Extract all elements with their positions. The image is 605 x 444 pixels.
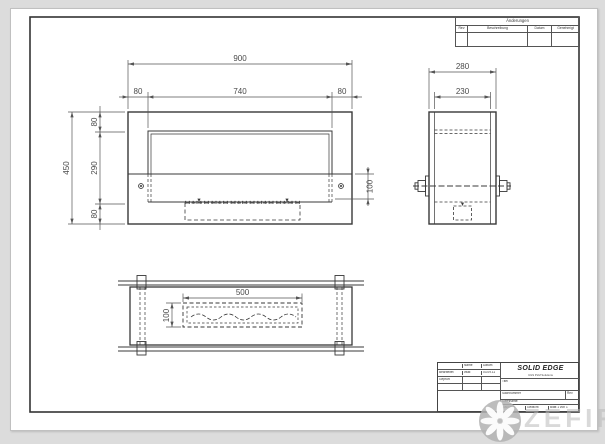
tb-bearbeitet-label: Bearbeitet <box>439 371 454 375</box>
side-view <box>413 112 511 224</box>
solid-edge-logo: SOLID EDGE <box>501 365 580 373</box>
tb-datum-header: Datum <box>481 364 500 368</box>
mount-hole-left <box>139 184 144 189</box>
dim-side-inner: 230 <box>456 87 470 96</box>
revision-table: Änderungen Rev Beschreibung Datum Genehm… <box>455 17 580 47</box>
tb-bearbeitet-name: vitali <box>462 371 480 375</box>
revision-col-beschreibung: Beschreibung <box>468 26 528 33</box>
revision-col-rev: Rev <box>456 26 468 33</box>
tb-name-header: Name <box>462 364 480 368</box>
front-dimensions: 900 80 740 80 450 80 290 80 100 <box>62 54 375 230</box>
revision-cell-empty <box>552 33 580 47</box>
revision-cell-empty <box>468 33 528 47</box>
tb-brand-box: SOLID EDGE UGS PLM Solutions <box>501 363 580 379</box>
front-view <box>128 112 352 224</box>
dim-slot-width: 100 <box>162 308 171 322</box>
dim-front-opening: 740 <box>233 87 247 96</box>
tb-geprueft-label: Geprüft <box>439 378 450 382</box>
tb-dateiname-label: Dateiname: <box>502 400 518 404</box>
revision-cell-empty <box>528 33 552 47</box>
tb-massstab-label: Maßstab <box>502 406 524 410</box>
tb-empty-area <box>438 391 501 413</box>
hidden-burner-box <box>185 203 300 220</box>
dim-front-mid-height: 290 <box>90 161 99 175</box>
dim-front-right-margin: 80 <box>338 87 347 96</box>
revision-col-genehmigt: Genehmigt <box>552 26 580 33</box>
page: { "dims": { "front": { "total_w": "900",… <box>0 0 605 436</box>
revision-table-title: Änderungen <box>456 18 580 26</box>
hidden-drain-box <box>454 206 472 220</box>
solid-edge-sub: UGS PLM Solutions <box>501 374 580 377</box>
dim-front-total-width: 900 <box>233 54 247 63</box>
mount-hole-right <box>339 184 344 189</box>
dim-front-strip: 100 <box>366 179 375 193</box>
dim-slot-length: 500 <box>236 288 250 297</box>
dim-front-top-margin: 80 <box>90 117 99 126</box>
zefire-watermark-text: ZEFIRE <box>524 403 605 434</box>
tb-bearbeitet-date: 03.09.11 <box>481 371 500 375</box>
side-dimensions: 280 230 <box>429 62 496 109</box>
dim-front-bottom-margin: 80 <box>90 209 99 218</box>
dim-front-left-margin: 80 <box>134 87 143 96</box>
revision-col-datum: Datum <box>528 26 552 33</box>
tb-titel-label: Titel <box>502 380 508 384</box>
tb-rev-label: Rev <box>565 391 579 400</box>
revision-cell-empty <box>456 33 468 47</box>
dim-side-total: 280 <box>456 62 470 71</box>
tb-sachnummer-label: Sachnummer <box>502 392 521 396</box>
flame-line <box>191 314 296 320</box>
dim-front-total-height: 450 <box>62 161 71 175</box>
bolt-head <box>335 342 344 356</box>
